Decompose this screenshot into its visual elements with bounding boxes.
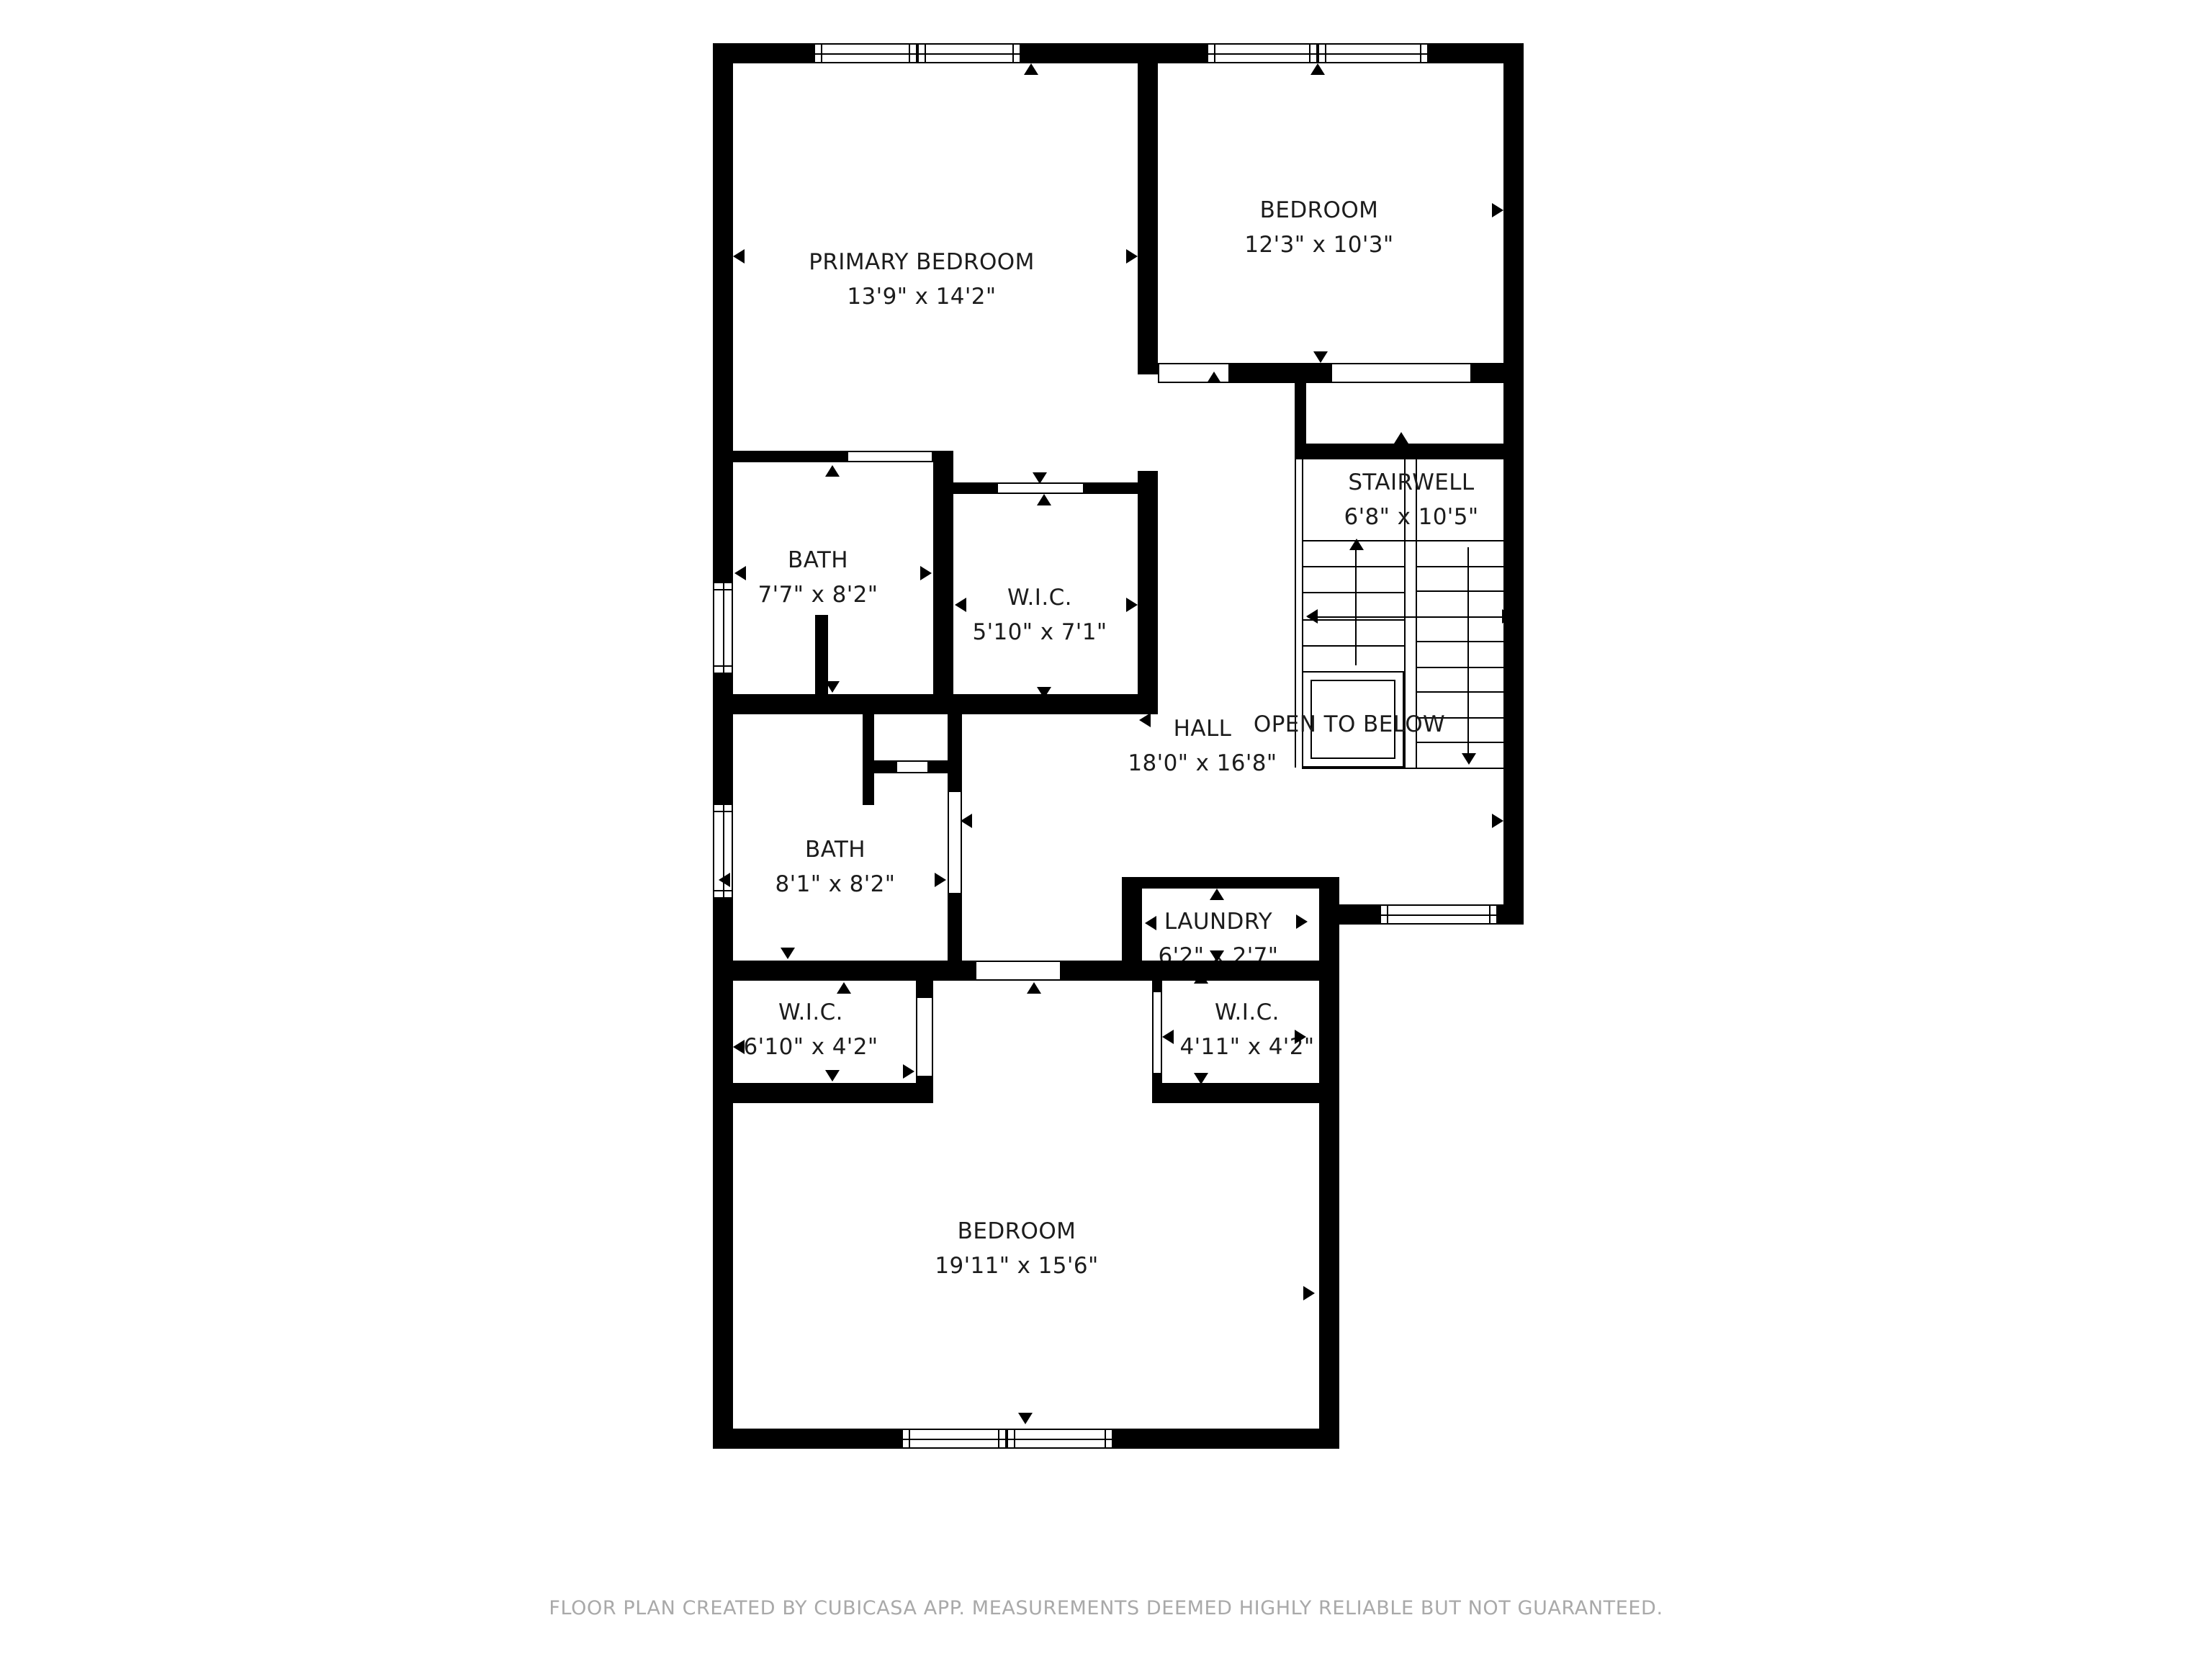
wall-top-2 <box>1021 43 1207 63</box>
measure-left-icon <box>1306 609 1318 624</box>
window-bottom-b <box>1007 1429 1113 1449</box>
window-top-left-a <box>814 43 917 63</box>
label-bedroom-top: BEDROOM 12'3" x 10'3" <box>1244 193 1393 262</box>
stair-tread <box>1416 641 1518 642</box>
wall-hall-se-1 <box>1339 904 1380 925</box>
measure-up-icon <box>825 465 840 477</box>
measure-right-icon <box>1303 1286 1315 1300</box>
label-wic-upper: W.I.C. 5'10" x 7'1" <box>972 580 1107 649</box>
wall-wic-upper-east <box>1138 471 1158 714</box>
window-top-right-b <box>1318 43 1429 63</box>
wall-right-upper <box>1503 43 1524 925</box>
measure-right-icon <box>1126 598 1138 612</box>
window-top-right-a <box>1207 43 1318 63</box>
door-bedroom-bottom <box>975 961 1061 981</box>
measure-left-icon <box>955 598 966 612</box>
measure-left-icon <box>1145 916 1156 930</box>
measure-down-icon <box>1037 687 1051 698</box>
stair-tread-top <box>1302 540 1518 541</box>
window-hall-se <box>1380 904 1498 925</box>
window-bottom-a <box>902 1429 1007 1449</box>
wall-wic-right-south <box>1152 1083 1319 1103</box>
opening-linen <box>896 760 929 773</box>
measure-up-icon <box>1024 63 1038 75</box>
wall-wic-left-south <box>713 1083 933 1103</box>
measure-right-icon <box>1492 814 1503 828</box>
stair-up-arrow-line <box>1355 547 1357 665</box>
door-wic-upper <box>997 482 1084 494</box>
measure-left-icon <box>733 249 745 264</box>
door-swing-up-icon <box>1027 982 1041 994</box>
wall-b-upper <box>948 714 962 791</box>
measure-down-icon <box>825 681 840 693</box>
measure-left-icon <box>733 1040 745 1054</box>
wall-b-stub <box>929 760 948 773</box>
measure-right-icon <box>920 566 932 580</box>
measure-right-icon <box>903 1064 914 1079</box>
label-wic-left: W.I.C. 6'10" x 4'2" <box>743 995 878 1064</box>
door-swing-down-icon <box>1313 351 1328 363</box>
window-top-left-b <box>917 43 1021 63</box>
stair-tread <box>1416 590 1518 592</box>
label-stairwell: STAIRWELL 6'8" x 10'5" <box>1344 465 1478 534</box>
measure-down-icon <box>1194 1073 1208 1084</box>
measure-up-icon <box>1394 432 1408 444</box>
wall-a-stub <box>874 760 896 773</box>
door-swing-left-icon <box>961 814 972 828</box>
wall-a <box>863 714 874 805</box>
wall-bedroom-south-1 <box>1230 363 1331 383</box>
stair-tread <box>1302 566 1404 567</box>
measure-left-icon <box>1162 1030 1174 1044</box>
opening-bedroom-landing <box>1331 363 1472 383</box>
window-left-bath-upper <box>713 582 733 674</box>
measure-right-icon <box>1295 1030 1306 1044</box>
door-wic-left <box>916 997 933 1077</box>
wall-landing-stub <box>1295 374 1306 446</box>
label-bedroom-bottom: BEDROOM 19'11" x 15'6" <box>935 1214 1098 1283</box>
measure-right-icon <box>1296 914 1308 929</box>
stair-tread <box>1416 566 1518 567</box>
measure-left-icon <box>719 873 730 887</box>
wall-stairwell-north <box>1295 444 1524 459</box>
wall-row1-south <box>713 694 1158 714</box>
label-primary-bedroom: PRIMARY BEDROOM 13'9" x 14'2" <box>809 245 1035 314</box>
wall-wic-left-east-2 <box>916 1077 933 1103</box>
wall-bottom-1 <box>713 1429 902 1449</box>
measure-up-icon <box>1310 63 1325 75</box>
door-swing-down-icon <box>1033 472 1047 484</box>
label-bath-upper: BATH 7'7" x 8'2" <box>758 543 878 612</box>
wall-bottom-2 <box>1113 1429 1339 1449</box>
stair-bottom-line <box>1302 768 1518 769</box>
wall-primary-divider <box>1138 43 1158 374</box>
measure-right-icon <box>1126 249 1138 264</box>
stair-tread <box>1302 592 1404 593</box>
door-wic-right <box>1152 991 1162 1074</box>
wall-left-1 <box>713 43 733 582</box>
wall-wic-left-east-1 <box>916 981 933 997</box>
wall-laundry-north <box>1142 877 1319 889</box>
measure-down-icon <box>1018 1413 1033 1424</box>
label-bath-lower: BATH 8'1" x 8'2" <box>775 832 896 902</box>
label-open-to-below: OPEN TO BELOW <box>1254 707 1445 742</box>
wall-laundry-south <box>1142 961 1319 981</box>
wall-bath-wic-divider <box>933 451 953 714</box>
stair-down-arrow-icon <box>1462 753 1476 765</box>
door-swing-up-icon <box>1037 494 1051 505</box>
stair-up-arrow-icon <box>1349 539 1364 550</box>
measure-left-icon <box>734 566 746 580</box>
measure-down-icon <box>825 1070 840 1082</box>
measure-down-icon <box>1210 950 1224 962</box>
wall-wic-right-west-1 <box>1152 969 1162 991</box>
stair-tread <box>1416 667 1518 668</box>
wall-bath-upper-north <box>713 451 847 462</box>
wall-row2-1 <box>713 961 975 981</box>
door-bath-lower <box>948 791 962 894</box>
wall-wic-upper-north-2 <box>1084 482 1138 494</box>
wall-wic-upper-north-1 <box>953 482 997 494</box>
wall-left-3 <box>713 899 733 1449</box>
stair-down-arrow-line <box>1467 547 1469 755</box>
wall-hall-se-2 <box>1498 904 1524 925</box>
stair-tread <box>1416 691 1518 693</box>
wall-left-2 <box>713 674 733 804</box>
wall-bedroom-south-2 <box>1472 363 1503 383</box>
footer-disclaimer: FLOOR PLAN CREATED BY CUBICASA APP. MEAS… <box>549 1597 1663 1620</box>
wall-laundry-west <box>1122 877 1142 981</box>
measure-up-icon <box>1210 889 1224 900</box>
door-bath-upper <box>847 451 933 462</box>
stair-tread <box>1416 742 1518 743</box>
wall-right-lower <box>1319 877 1339 1449</box>
floor-plan: PRIMARY BEDROOM 13'9" x 14'2" BEDROOM 12… <box>0 0 2212 1659</box>
stair-measure-line <box>1308 616 1512 618</box>
measure-right-icon <box>935 873 946 887</box>
measure-up-icon <box>1194 972 1208 984</box>
door-swing-up-icon <box>1207 372 1221 383</box>
measure-up-icon <box>837 982 851 994</box>
stair-tread <box>1302 645 1404 647</box>
measure-right-icon <box>1502 609 1514 624</box>
measure-down-icon <box>781 948 795 959</box>
measure-left-icon <box>1139 713 1151 727</box>
measure-right-icon <box>1492 203 1503 217</box>
